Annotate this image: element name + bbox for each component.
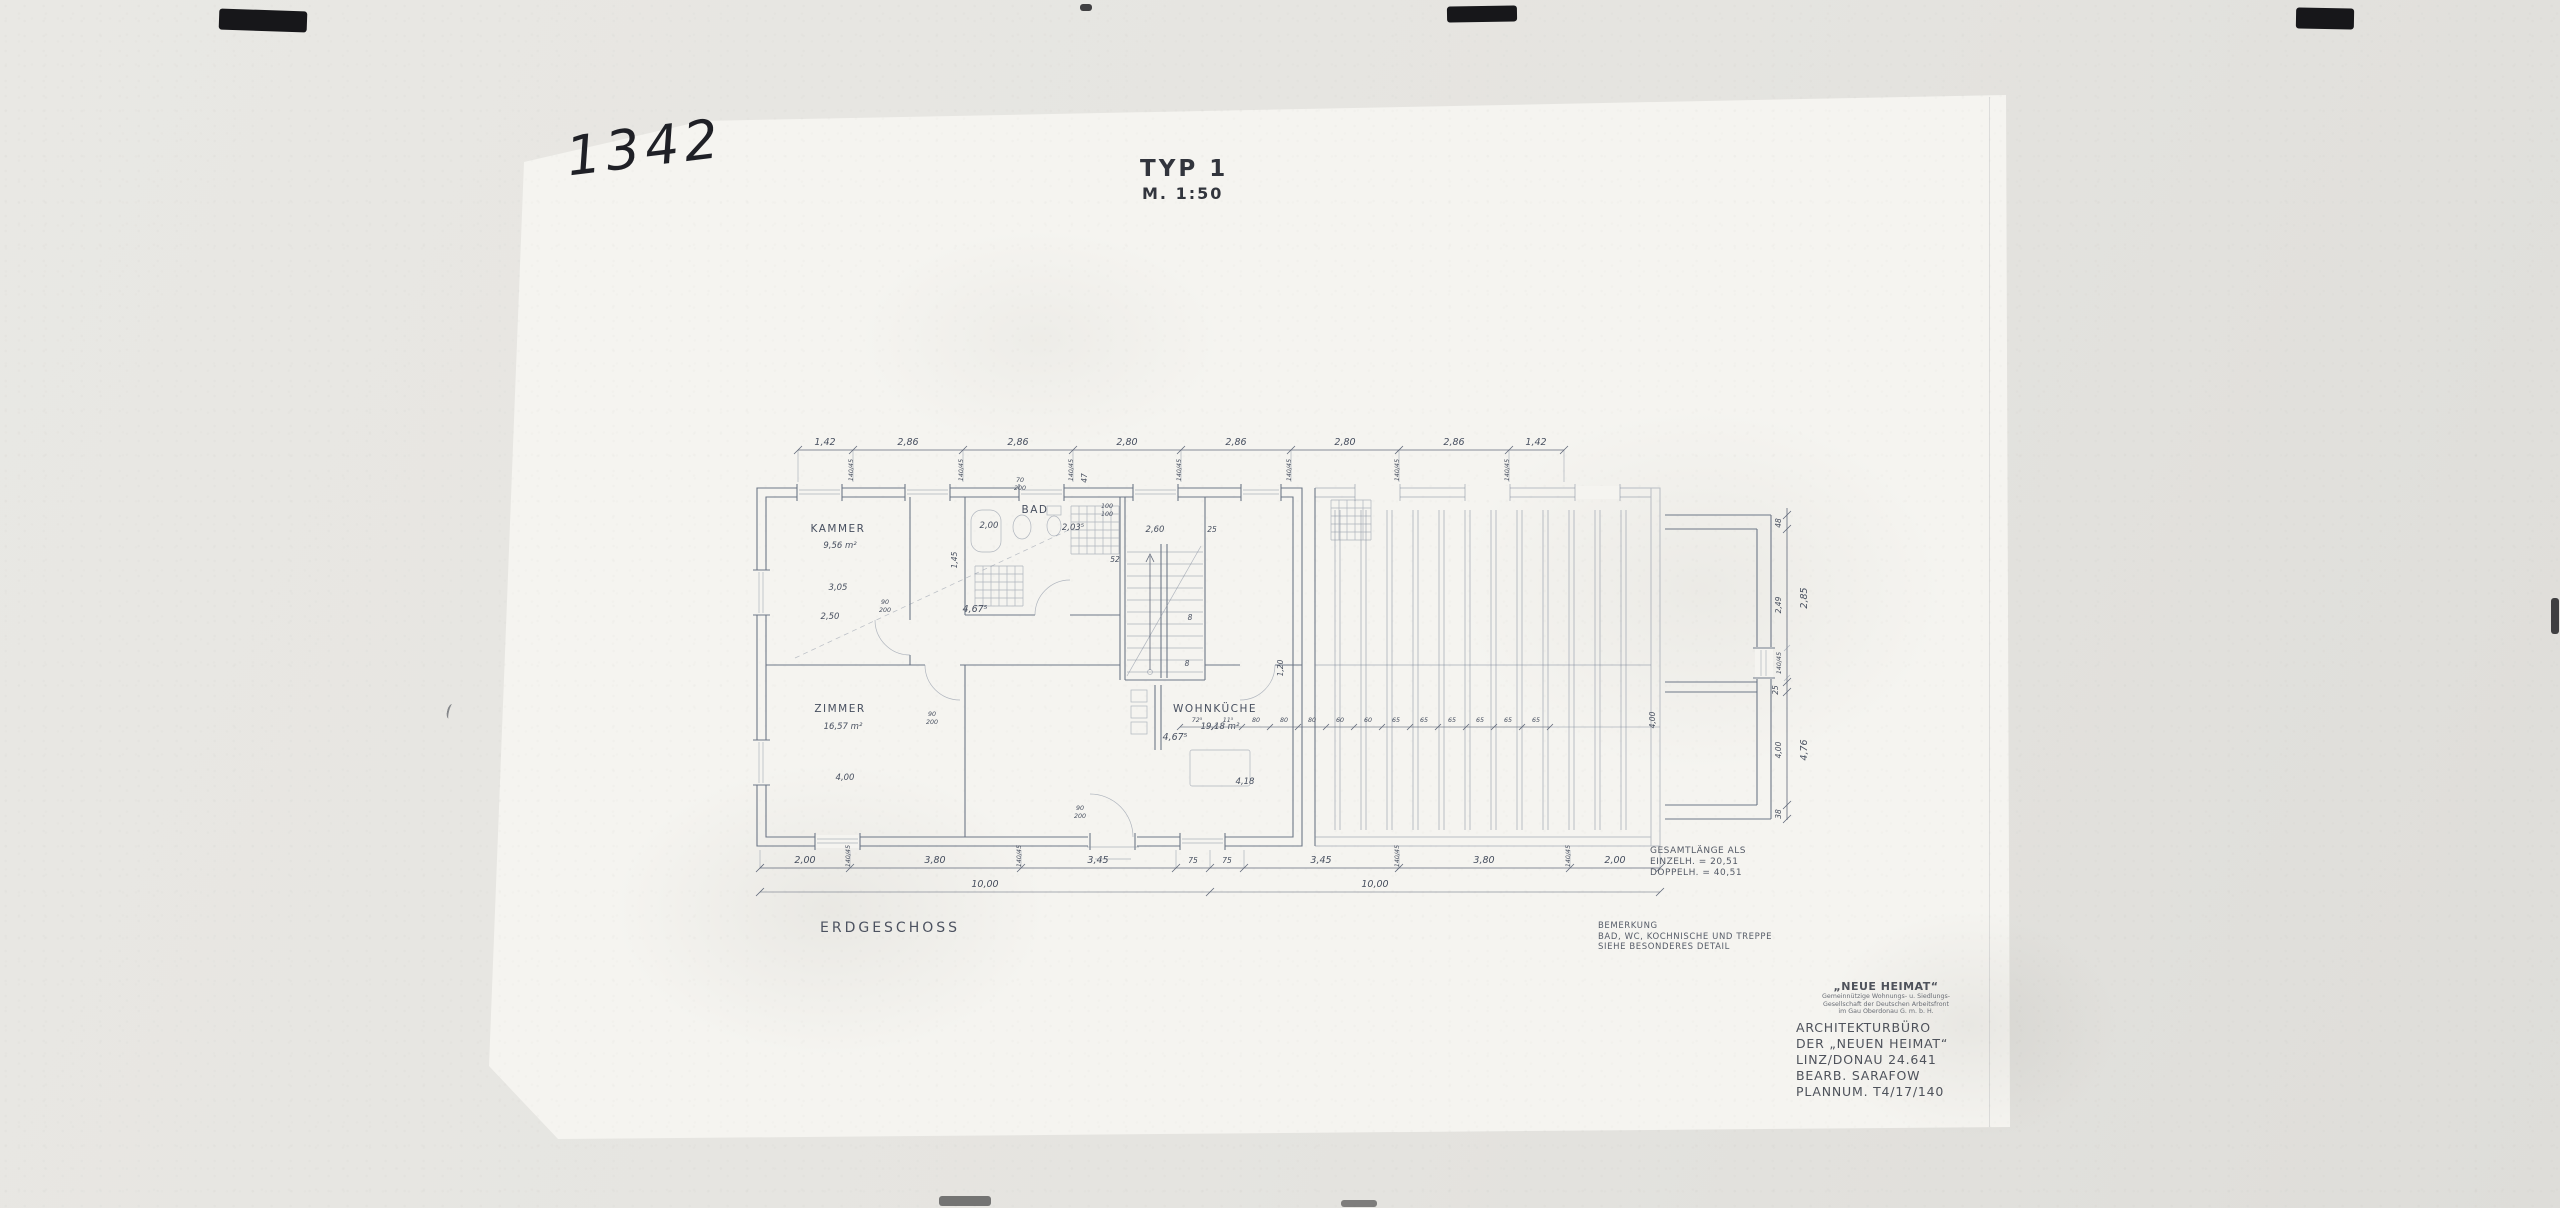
dim-top-5: 2,80 xyxy=(1334,437,1355,448)
dim-top-2: 2,86 xyxy=(1007,437,1028,448)
door-small-h: 200 xyxy=(1014,485,1026,492)
window-dim: 140/45 xyxy=(1286,459,1293,481)
dim-bottom-5: 3,45 xyxy=(1310,855,1331,866)
floor-label: ERDGESCHOSS xyxy=(820,920,960,936)
dim-200: 2,00 xyxy=(980,521,999,531)
scan-artifact xyxy=(1341,1200,1377,1207)
title-block-line-3: LINZ/DONAU 24.641 xyxy=(1796,1052,1976,1068)
right-total-1: 4,76 xyxy=(1799,739,1810,760)
note-line-1: BEMERKUNG xyxy=(1598,921,1772,932)
dim-top-7: 1,42 xyxy=(1525,437,1546,448)
floorplan-svg: 1,42 2,86 2,86 2,80 2,86 2,80 2,86 1,42 … xyxy=(735,420,1815,915)
total-length-line-3: DOPPELH. = 40,51 xyxy=(1650,868,1746,879)
window-dim: 140/45 xyxy=(845,845,852,867)
window-dim: 140/45 xyxy=(1565,845,1572,867)
dimension-chain-bottom: 2,00 3,80 3,45 75 75 3,45 3,80 2,00 140/… xyxy=(756,845,1664,896)
dim-mid-9: 65 xyxy=(1448,717,1456,724)
pencil-mark xyxy=(445,703,455,719)
room-area-zimmer: 16,57 m² xyxy=(824,722,863,732)
dim-mid-12: 65 xyxy=(1532,717,1540,724)
scan-artifact xyxy=(2296,7,2354,29)
title-block-line-1: ARCHITEKTURBÜRO xyxy=(1796,1020,1976,1036)
dim-room-depth: 4,00 xyxy=(1648,711,1657,728)
dim-bottom-0: 2,00 xyxy=(794,855,815,866)
door-dim-w: 90 xyxy=(1076,805,1084,812)
window-openings xyxy=(753,484,1281,850)
scan-artifact xyxy=(219,8,308,32)
stair-tread-count: 8 xyxy=(1188,613,1193,622)
scanned-drawing: 1342 TYP 1 M. 1:50 xyxy=(0,0,2560,1208)
dim-25: 25 xyxy=(1207,525,1217,534)
window-dim: 140/45 xyxy=(1176,459,1183,481)
title-block: „NEUE HEIMAT“ Gemeinnützige Wohnungs- u.… xyxy=(1796,980,1976,1100)
dim-mid-10: 65 xyxy=(1476,717,1484,724)
company-sub-1: Gemeinnützige Wohnungs- u. Siedlungs- xyxy=(1796,993,1976,1001)
dim-mid-11: 65 xyxy=(1504,717,1512,724)
dim-2035: 2,03⁵ xyxy=(1062,523,1085,533)
dimension-chain-right: 48 2,49 140/45 25 4,00 38 2,85 4,76 xyxy=(1771,508,1810,823)
dim-right-3: 4,00 xyxy=(1774,741,1783,758)
door-dim-h: 200 xyxy=(1074,813,1086,820)
sheet-fold-line xyxy=(1989,97,1990,1127)
window-dim: 140/45 xyxy=(1394,845,1401,867)
dim-right-1: 2,49 xyxy=(1774,596,1783,613)
dim-mid-8: 65 xyxy=(1420,717,1428,724)
room-area-wohnkueche: 19,18 m² xyxy=(1201,722,1240,732)
scan-artifact xyxy=(1080,4,1092,11)
company-sub-3: im Gau Oberdonau G. m. b. H. xyxy=(1796,1008,1976,1016)
dim-right-0: 48 xyxy=(1774,518,1783,528)
stair xyxy=(1127,544,1203,678)
dim-47: 47 xyxy=(1080,473,1089,483)
window-dim: 140/45 xyxy=(1776,652,1783,674)
company-name: „NEUE HEIMAT“ xyxy=(1796,980,1976,993)
dim-250: 2,50 xyxy=(821,612,840,622)
dim-mid-3: 80 xyxy=(1280,717,1288,724)
dim-bottom-2: 3,45 xyxy=(1087,855,1108,866)
title-block-line-4: BEARB. SARAFOW xyxy=(1796,1068,1976,1084)
dim-mid-2: 80 xyxy=(1252,717,1260,724)
dim-4675: 4,67⁵ xyxy=(963,604,988,615)
dim-right-4: 38 xyxy=(1774,809,1783,819)
door-small-w: 70 xyxy=(1016,477,1024,484)
dim-mid-5: 60 xyxy=(1336,717,1344,724)
note-bemerkung: BEMERKUNG BAD, WC, KOCHNISCHE UND TREPPE… xyxy=(1598,921,1772,953)
door-dim-w: 90 xyxy=(881,599,889,606)
window-dim: 140/45 xyxy=(1394,459,1401,481)
dim-4675b: 4,67⁵ xyxy=(1163,732,1188,743)
room-area-kammer: 9,56 m² xyxy=(823,541,857,551)
door-dim-h: 200 xyxy=(926,719,938,726)
dim-52: 52 xyxy=(1110,555,1120,564)
dimension-chain-top: 1,42 2,86 2,86 2,80 2,86 2,80 2,86 1,42 … xyxy=(794,437,1568,482)
plan-title-block: TYP 1 M. 1:50 xyxy=(1140,156,1228,203)
note-line-2: BAD, WC, KOCHNISCHE UND TREPPE xyxy=(1598,932,1772,943)
total-dim-0: 10,00 xyxy=(971,879,998,890)
dim-mid-6: 60 xyxy=(1364,717,1372,724)
interior-dimensions: 2,50 4,00 4,18 2,00 1,45 2,03⁵ 4,67⁵ 4,6… xyxy=(821,473,1285,820)
scan-artifact xyxy=(1447,5,1517,22)
dim-120: 1,20 xyxy=(1276,659,1285,676)
note-line-3: SIEHE BESONDERES DETAIL xyxy=(1598,942,1772,953)
room-label-zimmer: ZIMMER xyxy=(814,703,865,715)
window-dim: 140/45 xyxy=(1504,459,1511,481)
dim-top-4: 2,86 xyxy=(1225,437,1246,448)
room-label-bad: BAD xyxy=(1022,504,1049,516)
end-wall-fragment xyxy=(1665,515,1775,819)
total-length-note: GESAMTLÄNGE ALS EINZELH. = 20,51 DOPPELH… xyxy=(1650,846,1746,879)
window-dim: 140/45 xyxy=(1068,459,1075,481)
dim-260: 2,60 xyxy=(1146,525,1165,535)
room-label-kammer: KAMMER xyxy=(811,523,866,535)
dim-bottom-7: 2,00 xyxy=(1604,855,1625,866)
dim-bottom-1: 3,80 xyxy=(924,855,945,866)
window-dim: 140/45 xyxy=(848,459,855,481)
dim-top-1: 2,86 xyxy=(897,437,918,448)
total-length-line-1: GESAMTLÄNGE ALS xyxy=(1650,846,1746,857)
dim-top-0: 1,42 xyxy=(814,437,835,448)
dim-418: 4,18 xyxy=(1236,777,1256,787)
door-dim-w: 90 xyxy=(928,711,936,718)
dim-bottom-3: 75 xyxy=(1188,856,1198,865)
dim-400: 4,00 xyxy=(836,773,855,783)
dim-bottom-4: 75 xyxy=(1222,856,1232,865)
room-label-wohnkueche: WOHNKÜCHE xyxy=(1173,702,1257,715)
dim-top-3: 2,80 xyxy=(1116,437,1137,448)
right-unit xyxy=(1315,484,1660,846)
dim-kammer-width: 3,05 xyxy=(829,583,848,593)
plan-title: TYP 1 xyxy=(1140,156,1228,182)
dim-bottom-6: 3,80 xyxy=(1473,855,1494,866)
window-sq-w: 100 xyxy=(1101,503,1113,510)
title-block-line-5: PLANNUM. T4/17/140 xyxy=(1796,1084,1976,1100)
plan-scale: M. 1:50 xyxy=(1142,184,1228,203)
company-sub-2: Gesellschaft der Deutschen Arbeitsfront xyxy=(1796,1001,1976,1009)
total-length-line-2: EINZELH. = 20,51 xyxy=(1650,857,1746,868)
dim-mid-7: 65 xyxy=(1392,717,1400,724)
scan-artifact xyxy=(2551,598,2559,634)
dim-145: 1,45 xyxy=(950,551,959,568)
stair-tread-count: 8 xyxy=(1185,659,1190,668)
window-sq-h: 100 xyxy=(1101,511,1113,518)
dim-mid-4: 80 xyxy=(1308,717,1316,724)
right-total-0: 2,85 xyxy=(1799,587,1810,608)
title-block-line-2: DER „NEUEN HEIMAT“ xyxy=(1796,1036,1976,1052)
window-dim: 140/45 xyxy=(1016,845,1023,867)
dim-right-2: 25 xyxy=(1771,685,1780,695)
door-dim-h: 200 xyxy=(879,607,891,614)
scan-artifact xyxy=(939,1196,991,1206)
dim-top-6: 2,86 xyxy=(1443,437,1464,448)
total-dim-1: 10,00 xyxy=(1361,879,1388,890)
window-dim: 140/45 xyxy=(958,459,965,481)
